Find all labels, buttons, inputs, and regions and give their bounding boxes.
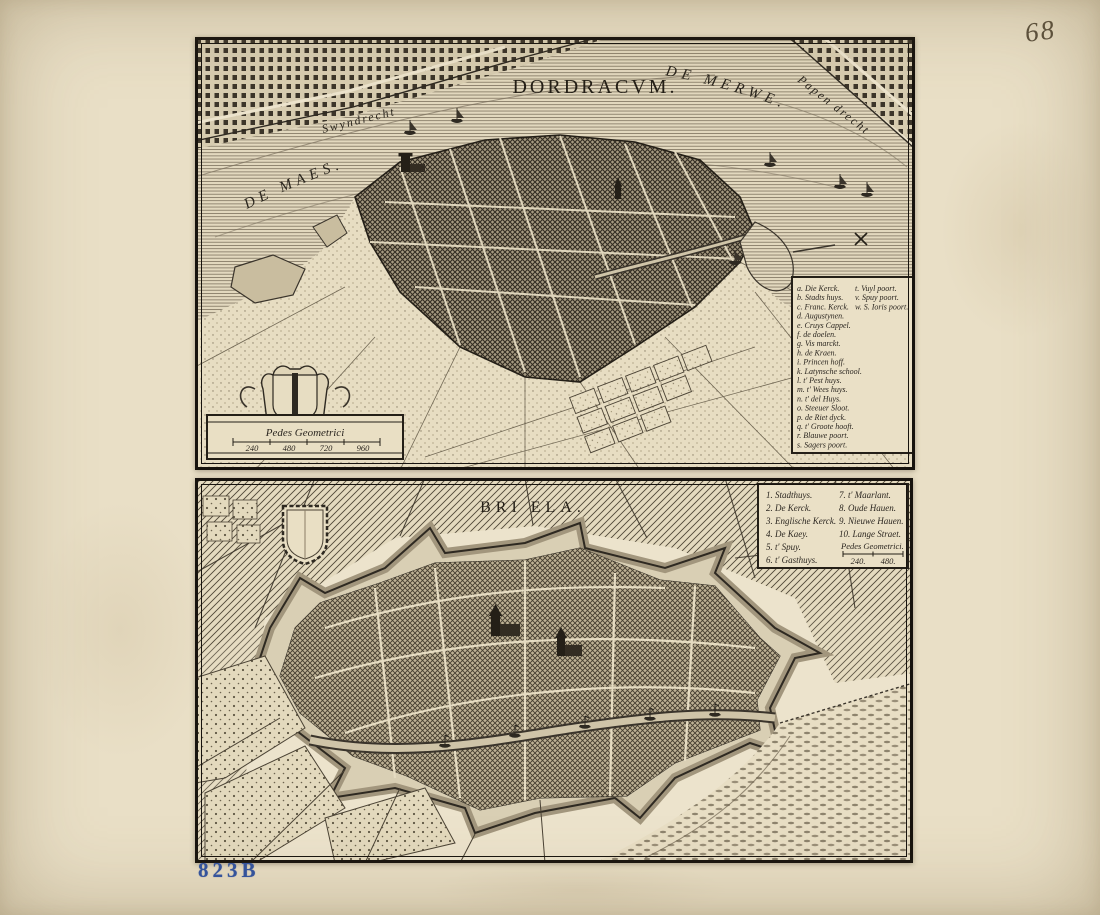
legend-entry: 3. Englische Kerck. (765, 516, 836, 526)
legend-entry: o. Steeuer Sloot. (797, 404, 849, 413)
legend-entry: 8. Oude Hauen. (839, 503, 896, 513)
paper-stain (30, 500, 210, 760)
legend-entry: 6. t' Gasthuys. (766, 555, 817, 565)
coat-of-arms-shield (283, 506, 327, 564)
legend-entry: c. Franc. Kerck. (797, 302, 849, 311)
legend-entry: l. t' Pest huys. (797, 376, 842, 385)
handwritten-page-number: 68 (1023, 14, 1058, 49)
legend-entry: b. Stadts huys. (797, 293, 843, 302)
legend-entry: 4. De Kaey. (766, 529, 808, 539)
scale-tick: 960 (357, 443, 371, 453)
legend-entry: w. S. Ioris poort. (855, 302, 908, 311)
legend-entry: 5. t' Spuy. (766, 542, 801, 552)
legend-entry: v. Spuy poort. (855, 293, 899, 302)
legend-entry: g. Vis marckt. (797, 339, 841, 348)
legend-entry: h. de Kraen. (797, 348, 837, 357)
legend-entry: r. Blauwe poort. (797, 431, 849, 440)
legend-entry: 7. t' Maarlant. (839, 490, 891, 500)
scale-label: Pedes Geometrici. (840, 541, 904, 551)
scale-tick: 480. (881, 556, 896, 566)
dordrecht-map-panel: DORDRACVM. DE MERWE. DE MAES. Swyndrecht… (195, 37, 915, 470)
map-title: DORDRACVM. (512, 76, 677, 98)
scale-label: Pedes Geometrici (265, 427, 345, 439)
legend-entry: n. t' del Huys. (797, 394, 841, 403)
scale-tick: 240 (246, 443, 260, 453)
dordrecht-legend: a. Die Kerck. t. Vuyl poort. b. Stadts h… (792, 277, 913, 453)
paper-stain (940, 120, 1100, 340)
legend-entry: p. de Riet dyck. (796, 413, 846, 422)
legend-entry: f. de doelen. (797, 330, 836, 339)
legend-entry: m. t' Wees huys. (797, 385, 848, 394)
brielle-legend: 1. Stadthuys. 2. De Kerck. 3. Englische … (758, 484, 908, 568)
legend-entry: 10. Lange Straet. (839, 529, 901, 539)
legend-entry: d. Augustynen. (797, 312, 844, 321)
legend-entry: s. Sagers poort. (797, 440, 847, 449)
legend-entry: i. Princen hoff. (797, 358, 845, 367)
scale-tick: 240. (851, 556, 866, 566)
paper-stain (430, 860, 730, 915)
brielle-map-panel: BRI ELA. 1. Stadthuys. 2. De Kerck. 3. E… (195, 478, 913, 863)
brielle-map-engraving: BRI ELA. 1. Stadthuys. 2. De Kerck. 3. E… (195, 478, 913, 863)
legend-entry: e. Cruys Cappel. (797, 321, 851, 330)
dordrecht-map-engraving: DORDRACVM. DE MERWE. DE MAES. Swyndrecht… (195, 37, 915, 470)
legend-entry: a. Die Kerck. (797, 284, 839, 293)
map-title: BRI ELA. (480, 499, 586, 516)
legend-entry: 9. Nieuwe Hauen. (839, 516, 904, 526)
legend-entry: q. t' Groote hooft. (797, 422, 854, 431)
collection-stamp: 823B (198, 858, 260, 883)
legend-entry: 2. De Kerck. (766, 503, 811, 513)
scale-tick: 480 (283, 443, 297, 453)
legend-entry: k. Latynsche school. (797, 367, 862, 376)
legend-entry: 1. Stadthuys. (766, 490, 812, 500)
atlas-page: 68 (0, 0, 1100, 915)
scale-tick: 720 (320, 443, 334, 453)
legend-entry: t. Vuyl poort. (855, 284, 897, 293)
